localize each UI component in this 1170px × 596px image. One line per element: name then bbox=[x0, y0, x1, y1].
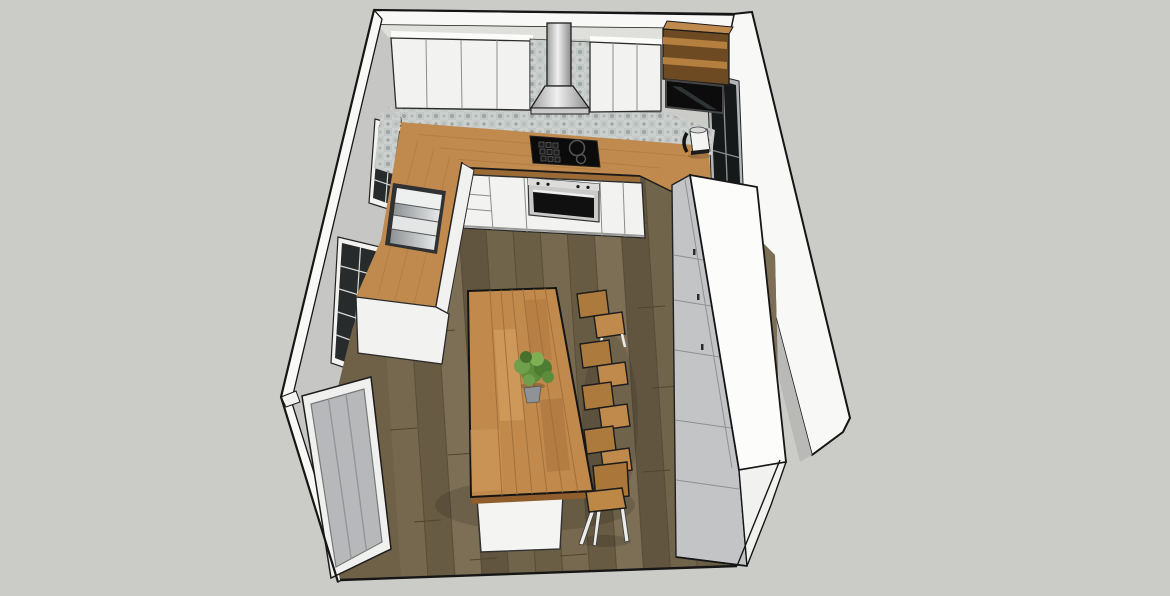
stool-backrest bbox=[577, 290, 609, 318]
stool-seat bbox=[599, 404, 630, 430]
chair-seat bbox=[586, 488, 626, 512]
render-canvas bbox=[0, 0, 1170, 596]
chair-shadow bbox=[579, 535, 631, 547]
base-end-panel bbox=[356, 297, 449, 364]
cabinet-doors bbox=[590, 42, 661, 112]
kitchen-3d-render bbox=[0, 0, 1170, 596]
plant-pot bbox=[524, 386, 541, 403]
upper-cabinets-right bbox=[590, 36, 664, 112]
wall-screen bbox=[666, 80, 723, 113]
stool-seat bbox=[594, 312, 625, 338]
hob-zone-grid bbox=[539, 142, 560, 162]
cooktop bbox=[530, 136, 600, 167]
shelf-box-interior bbox=[663, 29, 729, 85]
stool-backrest bbox=[580, 340, 612, 368]
hood-lip bbox=[531, 108, 589, 114]
upper-cabinets-left bbox=[391, 31, 533, 110]
oven bbox=[528, 178, 599, 222]
kettle-lid bbox=[690, 127, 706, 133]
open-shelf-box bbox=[663, 21, 733, 85]
hood-chimney bbox=[547, 23, 571, 86]
upper-run bbox=[391, 21, 733, 114]
cabinet-doors bbox=[391, 38, 530, 110]
sink bbox=[385, 183, 446, 254]
island-base bbox=[477, 495, 563, 552]
stool-backrest bbox=[584, 426, 616, 454]
stool-backrest bbox=[582, 382, 614, 410]
